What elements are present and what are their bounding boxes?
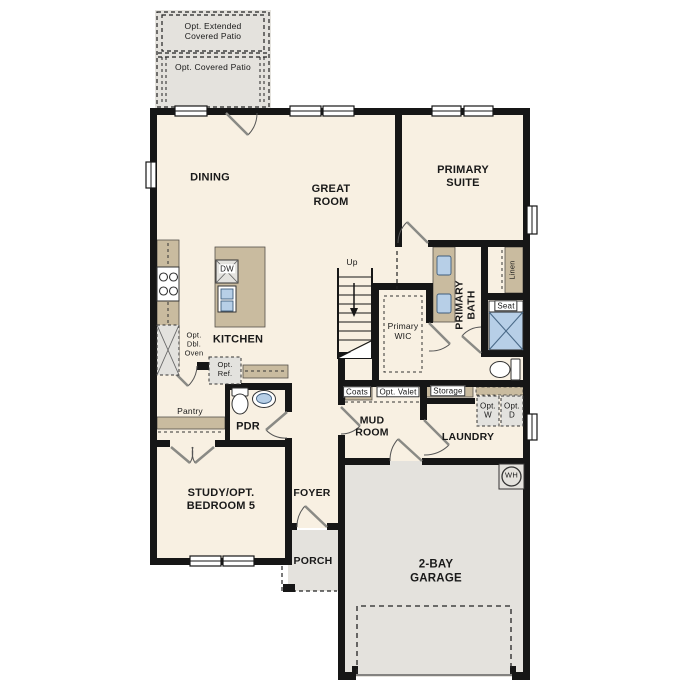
shower-icon — [489, 312, 523, 350]
wall — [481, 300, 488, 357]
wall — [372, 283, 433, 290]
wall — [488, 293, 523, 300]
cooktop-icon — [157, 267, 179, 301]
window — [146, 162, 156, 188]
wall — [338, 458, 345, 680]
dishwasher-icon — [216, 260, 238, 283]
wall — [215, 440, 292, 447]
vanity-sink-icon — [437, 256, 451, 275]
linen-shelf — [505, 247, 523, 293]
opt-washer-icon — [477, 396, 499, 426]
wall — [285, 383, 292, 412]
water-heater-icon — [499, 464, 524, 489]
wall — [338, 380, 530, 387]
porch-slab — [288, 530, 338, 591]
wall — [338, 352, 345, 405]
wall — [285, 438, 292, 565]
window — [290, 106, 321, 116]
floorplan-canvas: Opt. Extended Covered Patio Opt. Covered… — [0, 0, 687, 687]
window — [527, 206, 537, 234]
window — [190, 556, 221, 566]
stair-stringer — [337, 268, 339, 359]
wall — [428, 240, 523, 247]
wall — [285, 523, 297, 530]
powder-toilet-icon — [232, 388, 248, 414]
garage-slab — [343, 461, 526, 677]
storage-shelf — [424, 386, 473, 397]
porch-corner-pier — [283, 584, 295, 592]
opt-dryer-icon — [501, 396, 523, 426]
study-floor — [155, 440, 290, 562]
wall — [395, 115, 402, 247]
patio-slab — [155, 10, 271, 109]
opt-double-oven-icon — [157, 325, 179, 375]
coats-shelf — [345, 387, 372, 400]
window — [464, 106, 493, 116]
floorplan-drawing — [0, 0, 687, 687]
window — [527, 414, 537, 440]
wall — [523, 108, 530, 680]
wall — [372, 283, 379, 380]
wd-counter — [476, 387, 523, 395]
shower-seat — [489, 301, 523, 312]
stair-stringer — [371, 268, 373, 359]
wall — [395, 240, 398, 247]
window — [223, 556, 254, 566]
window — [432, 106, 461, 116]
pantry-shelf — [157, 417, 225, 429]
window — [323, 106, 354, 116]
powder-sink-icon — [253, 391, 276, 408]
island-sink-icon — [218, 286, 236, 312]
wall — [481, 350, 523, 357]
window — [175, 106, 207, 116]
wall — [338, 435, 345, 461]
main-floor — [155, 113, 527, 461]
opt-fridge-icon — [209, 357, 241, 384]
wall — [150, 440, 170, 447]
wall — [481, 247, 488, 300]
wall — [338, 458, 390, 465]
wall — [426, 283, 433, 323]
vanity-sink-icon — [437, 294, 451, 313]
wall — [424, 398, 475, 404]
